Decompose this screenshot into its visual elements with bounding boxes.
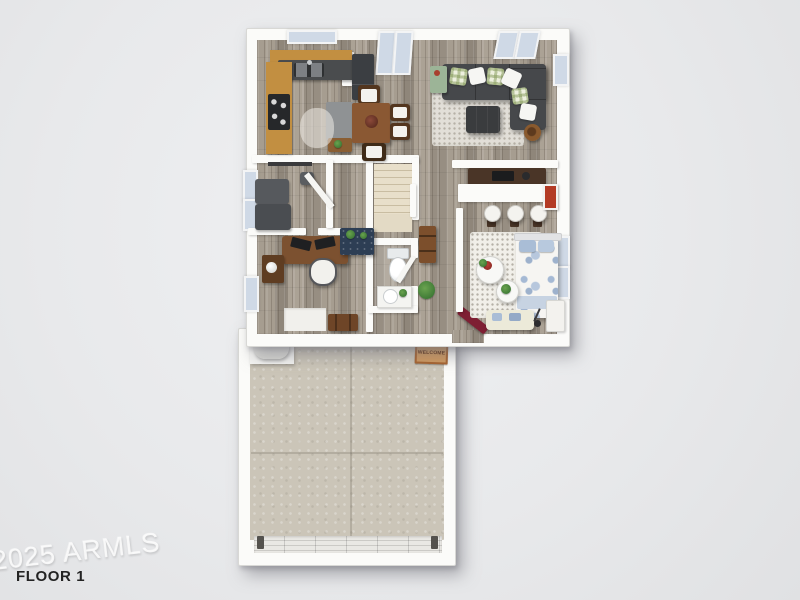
settee-pillow-1 — [492, 313, 502, 321]
navy-cabinet-plant-2 — [360, 232, 367, 239]
kitchen-sink — [294, 63, 324, 77]
sofa-pillow-white-3 — [519, 103, 538, 122]
round-table-greens — [479, 259, 487, 267]
dining-chair-bottom-cushion — [366, 146, 382, 158]
bedroom-dresser — [546, 300, 565, 332]
sofa-pillow-white-1 — [468, 67, 487, 86]
garage-door-track-left — [257, 536, 264, 549]
kitchen-cooktop — [268, 94, 290, 130]
vanity-plant — [399, 289, 407, 297]
front-door-opening — [452, 330, 484, 343]
navy-cabinet-plant-1 — [346, 230, 355, 239]
office-closet-floor — [284, 308, 326, 331]
garage-door-track-right — [431, 536, 438, 549]
wall-bedroom-left — [456, 208, 463, 312]
garage-floor-joint-horizontal — [251, 452, 443, 454]
garage-floor — [250, 338, 444, 540]
patio-door-panel-2 — [392, 31, 413, 75]
side-table-lamp — [266, 262, 277, 273]
dining-chair-right-1-cushion — [393, 107, 407, 118]
island-plant — [334, 140, 342, 148]
dining-centerpiece — [365, 115, 378, 128]
welcome-mat-text: WELCOME — [418, 349, 446, 356]
dryer — [255, 204, 291, 230]
hall-closet-door — [410, 184, 416, 217]
sofa-pillow-plaid-1 — [449, 67, 468, 86]
bar-stool-1 — [484, 205, 501, 222]
bedroom-wall-art — [543, 184, 558, 210]
bar-laptop — [492, 171, 514, 181]
bed-pillow-1 — [519, 240, 536, 252]
bed-pillow-2 — [538, 240, 554, 252]
ottoman — [466, 106, 500, 133]
round-table-2-plant — [501, 284, 511, 294]
dining-chair-right-2-cushion — [393, 126, 407, 137]
living-room-side-window — [553, 54, 569, 86]
kitchen-window — [287, 30, 337, 44]
office-window — [244, 276, 259, 312]
settee-pillow-2 — [509, 313, 521, 321]
bar-decor-item — [522, 172, 530, 180]
garage-floor-joint-vertical — [350, 340, 352, 538]
kitchen-accent-rug — [300, 108, 334, 148]
office-chair — [309, 258, 337, 286]
navy-cabinet — [340, 228, 374, 255]
dining-chair-top-cushion — [361, 89, 377, 102]
washer — [255, 179, 289, 204]
storage-trunk — [328, 314, 358, 331]
staircase — [374, 164, 412, 214]
wall-laundry-right — [326, 160, 333, 228]
garage-door — [254, 536, 442, 553]
bar-counter-base — [458, 184, 548, 202]
hallway-plant — [418, 281, 435, 299]
basket — [524, 124, 541, 141]
wall-living-bedroom — [452, 160, 558, 168]
wall-stairs-left — [366, 158, 373, 234]
floor-title: FLOOR 1 — [16, 568, 85, 585]
hall-console-table — [419, 226, 436, 263]
side-table-decor-red — [434, 70, 440, 76]
floor-plan-scene: WELCOME — [0, 0, 800, 600]
vanity-basin — [383, 289, 398, 304]
bar-stool-2 — [507, 205, 524, 222]
kitchen-faucet — [307, 60, 312, 65]
sofa-pillow-plaid-3 — [511, 87, 529, 105]
stair-landing — [374, 214, 412, 232]
laundry-shelf — [268, 162, 312, 166]
